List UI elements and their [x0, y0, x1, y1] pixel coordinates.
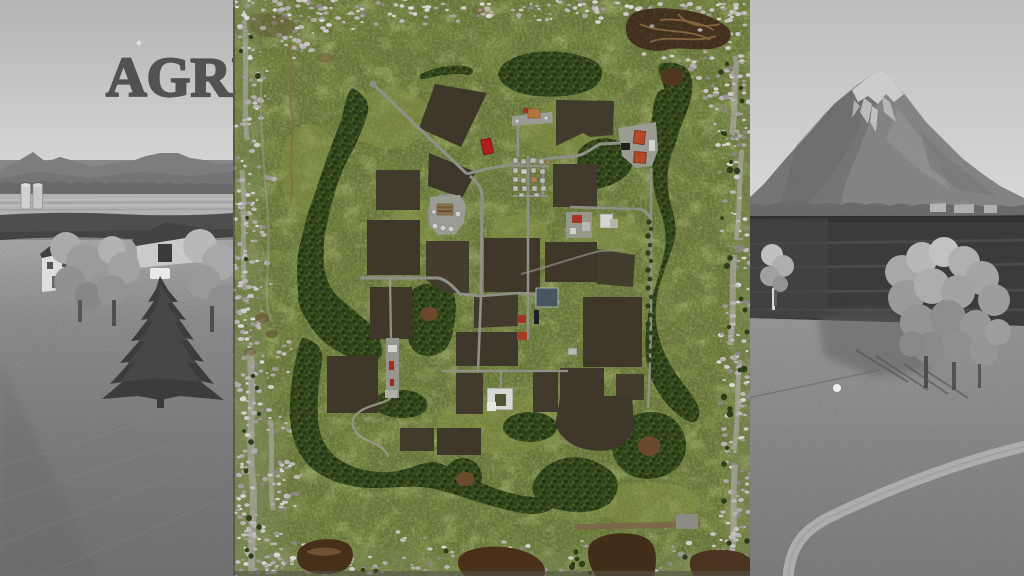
svg-text:AGRI: AGRI — [106, 47, 253, 109]
